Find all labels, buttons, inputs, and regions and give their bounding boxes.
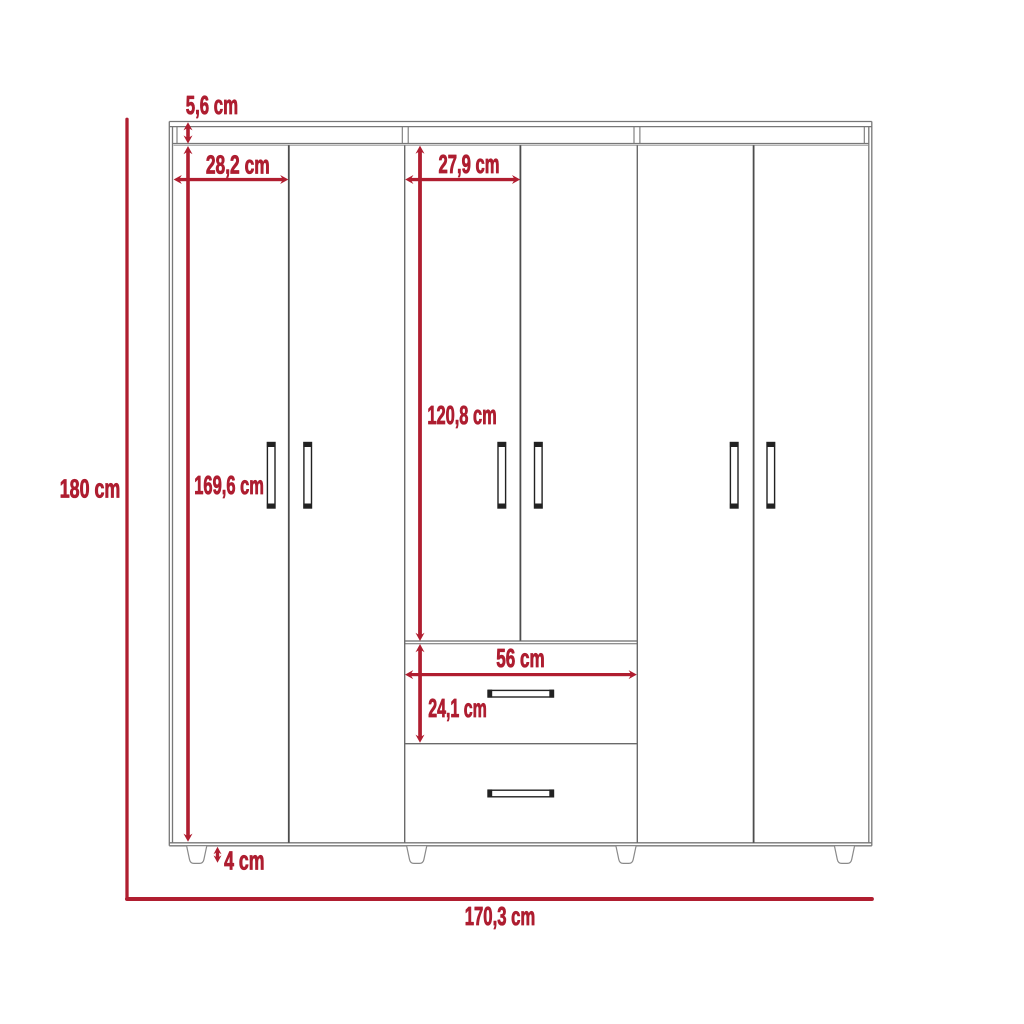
svg-text:170,3 cm: 170,3 cm — [465, 901, 536, 931]
svg-text:4 cm: 4 cm — [224, 846, 264, 875]
svg-text:28,2 cm: 28,2 cm — [206, 150, 270, 179]
svg-text:180 cm: 180 cm — [60, 474, 121, 503]
svg-text:27,9 cm: 27,9 cm — [439, 150, 500, 178]
svg-text:5,6 cm: 5,6 cm — [186, 90, 238, 120]
svg-text:56 cm: 56 cm — [496, 643, 544, 672]
svg-text:120,8 cm: 120,8 cm — [427, 401, 496, 430]
svg-text:24,1 cm: 24,1 cm — [428, 694, 487, 723]
svg-text:169,6 cm: 169,6 cm — [194, 471, 264, 499]
